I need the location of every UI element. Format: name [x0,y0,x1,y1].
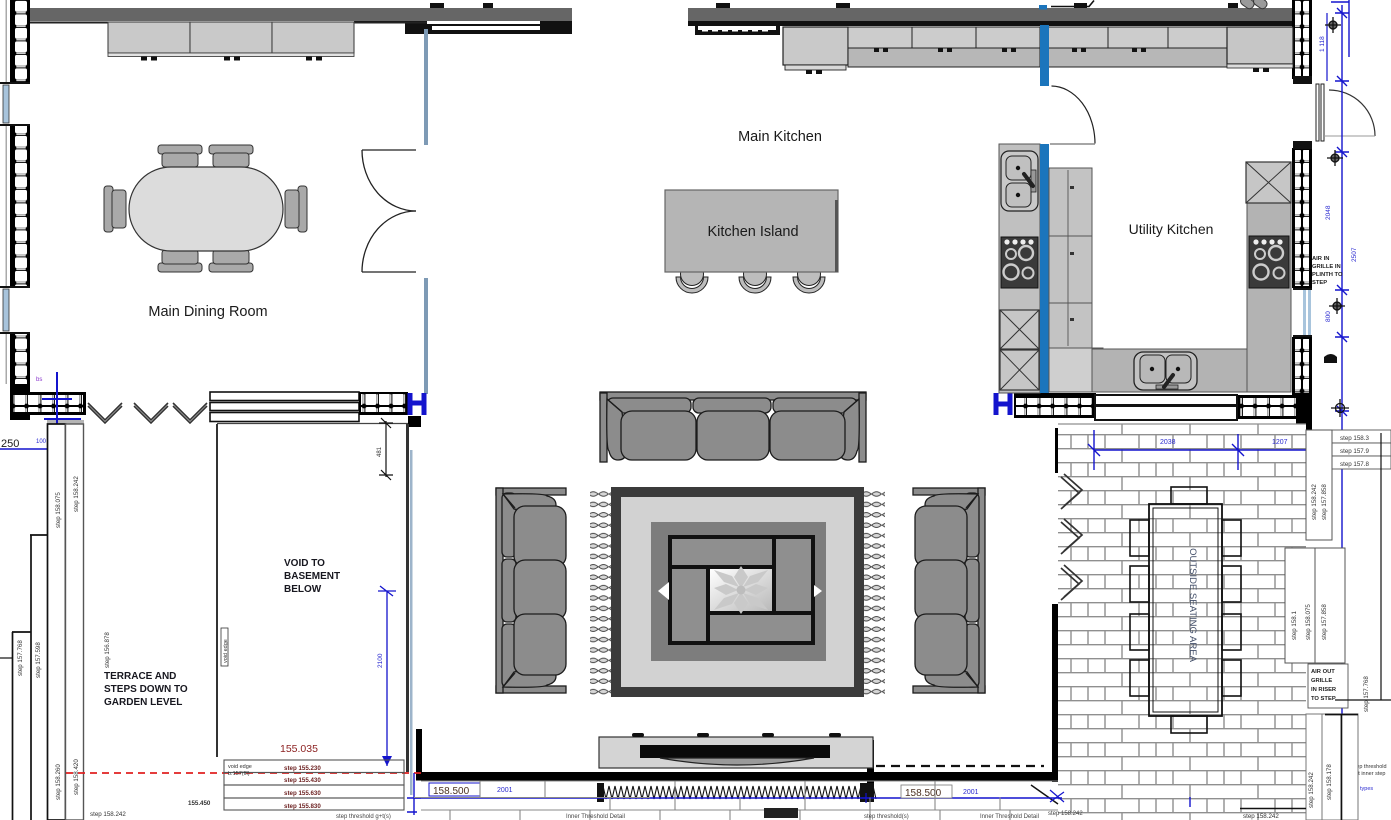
svg-text:bs: bs [36,377,42,383]
svg-text:VOID TO: VOID TO [284,558,325,569]
svg-text:step 158.242: step 158.242 [1308,772,1315,808]
svg-text:step 155.230: step 155.230 [284,765,321,772]
svg-text:2507: 2507 [1351,247,1358,262]
svg-text:step 157.9: step 157.9 [1340,448,1369,455]
svg-text:Main Kitchen: Main Kitchen [738,129,822,145]
svg-text:PLINTH TO: PLINTH TO [1312,272,1343,278]
svg-text:TERRACE AND: TERRACE AND [104,671,176,682]
svg-text:void edge: void edge [223,639,229,663]
svg-text:1207: 1207 [1272,439,1288,446]
svg-text:step 158.3: step 158.3 [1340,435,1369,442]
svg-text:step 158.420: step 158.420 [73,759,80,795]
svg-text:Kitchen Island: Kitchen Island [707,224,798,240]
svg-text:1 118: 1 118 [1319,36,1326,52]
svg-text:BELOW: BELOW [284,584,322,595]
svg-text:2001: 2001 [963,789,979,796]
svg-text:step 155.430: step 155.430 [284,777,321,784]
svg-text:800: 800 [1325,311,1332,322]
svg-text:step 158.260: step 158.260 [55,764,62,800]
svg-text:155.450: 155.450 [188,800,211,807]
svg-text:2100: 2100 [377,653,384,668]
svg-text:BASEMENT: BASEMENT [284,571,340,582]
svg-text:step 157.768: step 157.768 [1363,676,1370,712]
svg-text:STEPS DOWN TO: STEPS DOWN TO [104,684,188,695]
svg-text:step 157.8: step 157.8 [1340,461,1369,468]
svg-text:step 158.1: step 158.1 [1291,611,1298,640]
svg-text:step threshold(s): step threshold(s) [864,814,909,820]
svg-text:step 157.598: step 157.598 [35,642,42,678]
svg-text:step 155.830: step 155.830 [284,803,321,810]
svg-text:step 158.242: step 158.242 [1048,811,1083,817]
svg-text:step 158.242: step 158.242 [90,811,126,818]
svg-text:void edge: void edge [228,764,252,770]
svg-text:types: types [1360,786,1373,792]
svg-text:AIR OUT: AIR OUT [1311,669,1335,675]
svg-text:2048: 2048 [1325,205,1332,220]
svg-text:GRILLE IN: GRILLE IN [1312,264,1341,270]
svg-text:IN RISER: IN RISER [1311,687,1337,693]
svg-text:step 158.075: step 158.075 [55,492,62,528]
svg-text:step 157.858: step 157.858 [1321,484,1328,520]
svg-text:step 157.858: step 157.858 [1321,604,1328,640]
svg-text:step threshold g+t(s): step threshold g+t(s) [336,814,391,820]
svg-text:158.500: 158.500 [433,786,470,797]
svg-text:100: 100 [36,439,47,445]
svg-text:step 158.075: step 158.075 [1305,604,1312,640]
svg-text:step 158.242: step 158.242 [1311,484,1318,520]
svg-text:158.500: 158.500 [905,788,942,799]
svg-text:step 158.242: step 158.242 [73,476,80,512]
svg-text:AIR IN: AIR IN [1312,256,1329,262]
svg-text:155.035: 155.035 [280,743,318,755]
svg-text:2038: 2038 [1160,439,1176,446]
svg-text:STEP: STEP [1312,280,1327,286]
svg-text:step 155.630: step 155.630 [284,790,321,797]
svg-text:GRILLE: GRILLE [1311,678,1332,684]
svg-text:Inner Threshold Detail: Inner Threshold Detail [566,814,625,820]
svg-text:2001: 2001 [497,787,513,794]
svg-text:b.157(ffl): b.157(ffl) [228,771,250,777]
svg-text:step 157.768: step 157.768 [17,640,24,676]
svg-text:481: 481 [377,446,383,457]
svg-text:OUTSIDE SEATING AREA: OUTSIDE SEATING AREA [1187,548,1198,663]
svg-text:TO STEP: TO STEP [1311,696,1336,702]
svg-text:Utility Kitchen: Utility Kitchen [1129,221,1214,237]
svg-text:step 158.242: step 158.242 [1243,813,1279,820]
svg-text:step 158.178: step 158.178 [1326,764,1333,800]
svg-text:Inner Threshold Detail: Inner Threshold Detail [980,814,1039,820]
svg-text:GARDEN LEVEL: GARDEN LEVEL [104,697,182,708]
svg-text:Main Dining Room: Main Dining Room [148,304,267,320]
svg-text:step 156.878: step 156.878 [104,632,111,668]
